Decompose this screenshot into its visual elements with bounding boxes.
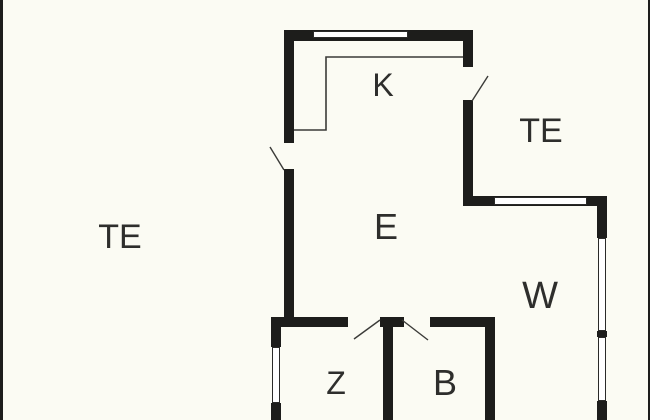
window-z-left [272,347,280,403]
image-edge-left [0,0,3,420]
door-swing-kitchen-right [472,76,488,101]
wall-left-upper [284,30,294,143]
wall-bottom-b [380,317,404,327]
door-swing-room-z [354,320,380,339]
room-label-terrace-right: TE [519,114,562,148]
room-label-terrace-left: TE [98,220,141,254]
window-right-upper [598,238,606,331]
door-swing-left-terrace [270,147,284,170]
wall-z-left-lower [271,403,281,420]
wall-bottom-a [271,317,348,327]
room-label-room-b: B [433,365,457,401]
wall-left-lower [284,169,294,317]
wall-b-right [485,317,495,420]
window-right-lower [598,337,606,401]
room-label-room-z: Z [326,367,346,399]
wall-kitchen-right-upper [463,41,473,67]
thin-lines-overlay [0,0,650,420]
room-label-kitchen: K [372,69,393,101]
wall-right-lower [597,401,607,420]
wall-right-upper [597,206,607,238]
wall-kitchen-right-lower [463,100,473,206]
floor-plan: KTETEEWZB [0,0,650,420]
wall-zb-divider [383,327,393,420]
window-terrace-wall [494,197,587,205]
room-label-living-room: E [374,209,398,245]
window-top [313,31,408,38]
room-label-room-w: W [522,277,558,315]
door-swing-room-b [402,320,428,340]
